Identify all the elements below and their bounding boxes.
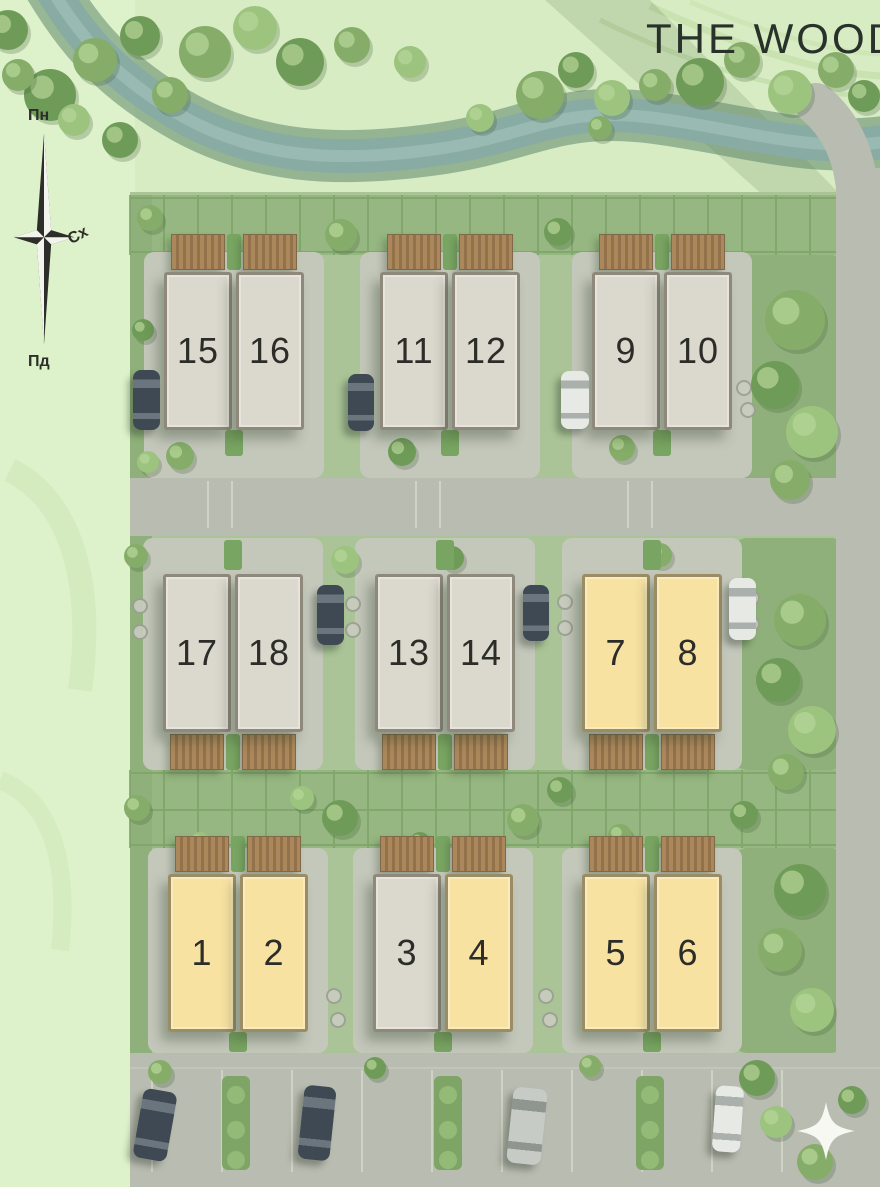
unit-18[interactable]: 18 (235, 574, 303, 732)
unit-10[interactable]: 10 (664, 272, 732, 430)
unit-number: 16 (249, 333, 291, 369)
terrace (242, 734, 296, 770)
hedge-divider (645, 836, 659, 872)
car (729, 578, 756, 640)
hedge-divider (645, 734, 659, 770)
unit-number: 2 (263, 935, 284, 971)
car (712, 1085, 745, 1153)
unit-13[interactable]: 13 (375, 574, 443, 732)
hedge-divider (438, 734, 452, 770)
unit-4[interactable]: 4 (445, 874, 513, 1032)
unit-number: 1 (191, 935, 212, 971)
unit-5[interactable]: 5 (582, 874, 650, 1032)
hedge-divider (226, 734, 240, 770)
unit-16[interactable]: 16 (236, 272, 304, 430)
unit-number: 11 (394, 333, 433, 369)
unit-8[interactable]: 8 (654, 574, 722, 732)
site-plan-canvas: 151611129101718131478123456 Пн Сх Пд THE… (0, 0, 880, 1187)
hedge-divider (434, 1032, 452, 1052)
terrace (454, 734, 508, 770)
hedge-divider (224, 540, 242, 570)
hedge-divider (441, 430, 459, 456)
terrace (459, 234, 513, 270)
terrace (247, 836, 301, 872)
unit-number: 8 (677, 635, 698, 671)
hedge-divider (643, 540, 661, 570)
terrace (382, 734, 436, 770)
hedge-divider (436, 540, 454, 570)
unit-number: 6 (677, 935, 698, 971)
terrace (387, 234, 441, 270)
car (348, 374, 374, 431)
hedge-divider (229, 1032, 247, 1052)
hedge-divider (231, 836, 245, 872)
terrace (599, 234, 653, 270)
unit-number: 9 (615, 333, 636, 369)
car (133, 370, 160, 430)
unit-12[interactable]: 12 (452, 272, 520, 430)
unit-number: 4 (468, 935, 489, 971)
car (317, 585, 344, 645)
hedge-divider (225, 430, 243, 456)
unit-9[interactable]: 9 (592, 272, 660, 430)
unit-number: 5 (605, 935, 626, 971)
unit-number: 13 (388, 635, 430, 671)
terrace (171, 234, 225, 270)
terrace (243, 234, 297, 270)
unit-number: 12 (465, 333, 507, 369)
sparkle-icon (795, 1100, 857, 1162)
terrace (380, 836, 434, 872)
unit-number: 14 (460, 635, 502, 671)
hedge-divider (643, 1032, 661, 1052)
car (561, 371, 589, 429)
car (523, 585, 549, 641)
hedge-divider (653, 430, 671, 456)
hedge-divider (655, 234, 669, 270)
terrace (589, 836, 643, 872)
terrace (671, 234, 725, 270)
unit-17[interactable]: 17 (163, 574, 231, 732)
project-title: THE WOOD (646, 18, 880, 60)
unit-14[interactable]: 14 (447, 574, 515, 732)
terrace (452, 836, 506, 872)
unit-number: 17 (176, 635, 218, 671)
unit-3[interactable]: 3 (373, 874, 441, 1032)
compass-rose: Пн Сх Пд (4, 108, 94, 370)
terrace (175, 836, 229, 872)
terrace (170, 734, 224, 770)
unit-number: 7 (605, 635, 626, 671)
unit-6[interactable]: 6 (654, 874, 722, 1032)
hedge-divider (436, 836, 450, 872)
unit-11[interactable]: 11 (380, 272, 448, 430)
unit-1[interactable]: 1 (168, 874, 236, 1032)
terrace (661, 734, 715, 770)
hedge-divider (443, 234, 457, 270)
terrace (589, 734, 643, 770)
unit-number: 18 (248, 635, 290, 671)
terrace (661, 836, 715, 872)
compass-south-label: Пд (28, 354, 50, 370)
unit-number: 15 (177, 333, 219, 369)
unit-number: 10 (677, 333, 719, 369)
hedge-divider (227, 234, 241, 270)
unit-2[interactable]: 2 (240, 874, 308, 1032)
unit-7[interactable]: 7 (582, 574, 650, 732)
compass-north-label: Пн (28, 108, 49, 124)
unit-15[interactable]: 15 (164, 272, 232, 430)
unit-number: 3 (396, 935, 417, 971)
